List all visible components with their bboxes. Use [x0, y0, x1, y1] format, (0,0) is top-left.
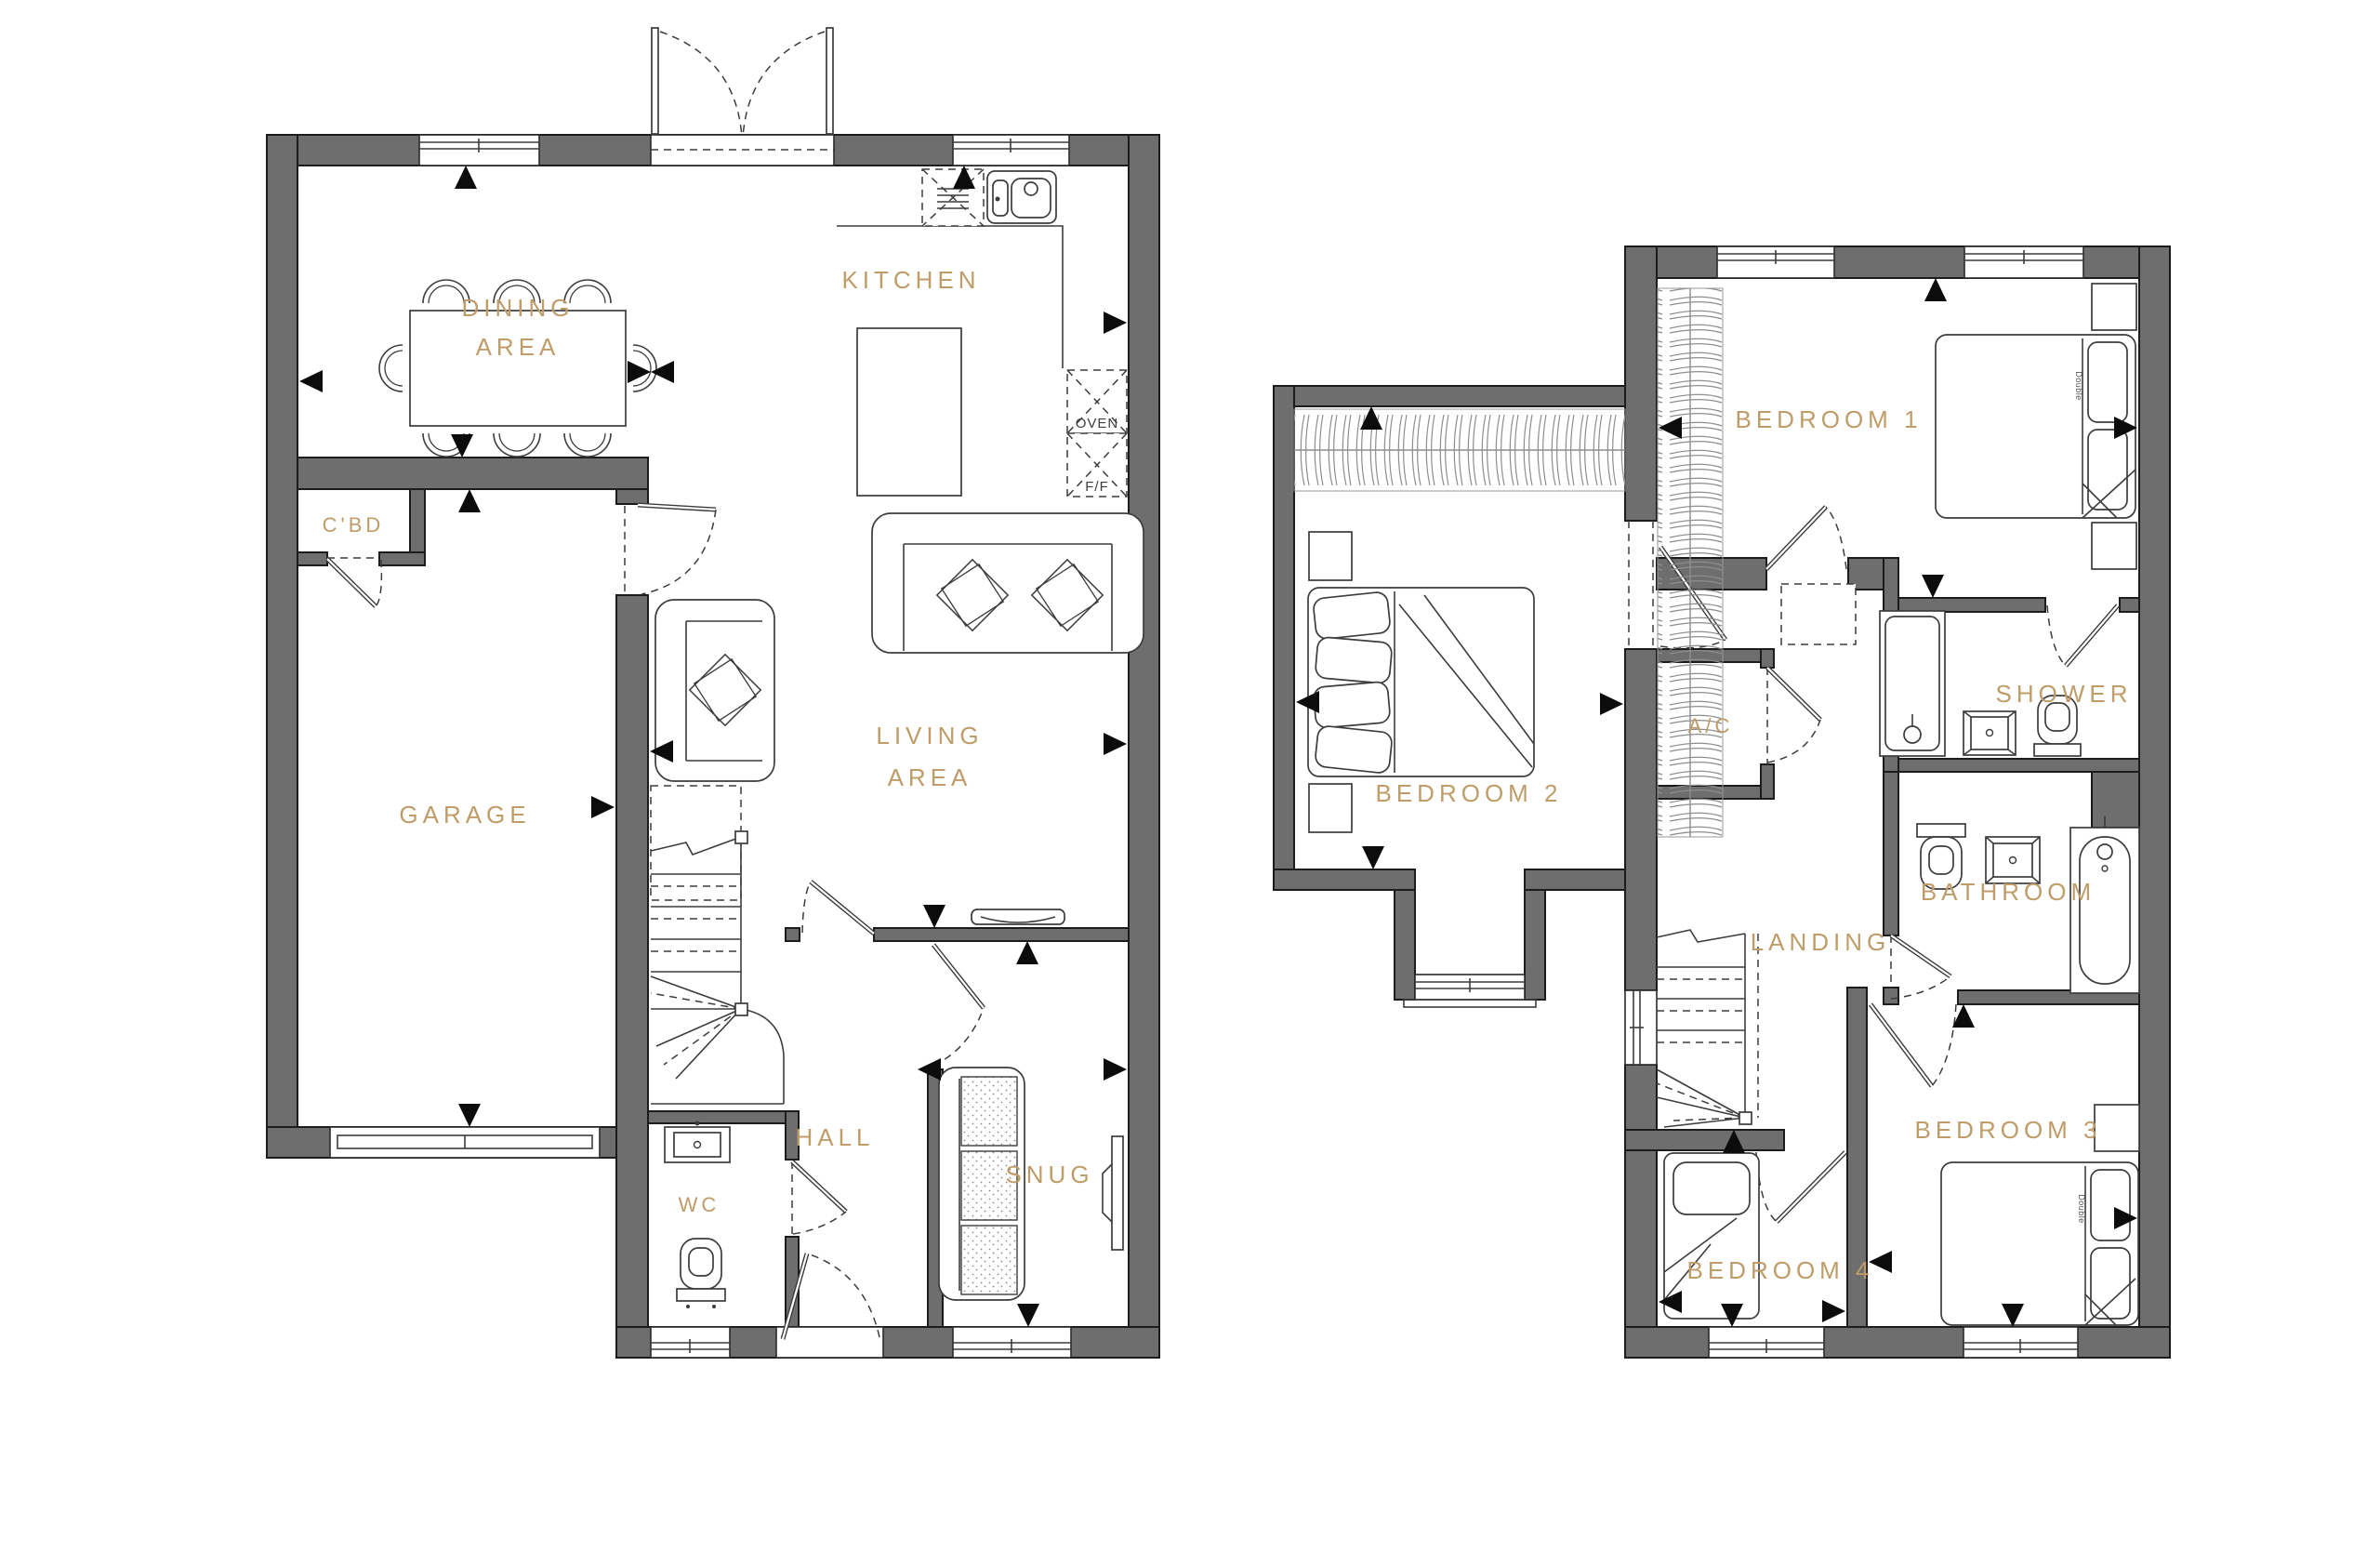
room-label-bedroom2: BEDROOM 2	[1375, 779, 1562, 807]
hall-shelf	[972, 909, 1064, 924]
shower-room-door	[2047, 605, 2118, 666]
room-label-wc: WC	[679, 1193, 721, 1216]
window	[1717, 246, 1834, 278]
garage-living-door	[625, 505, 716, 594]
room-label-bedroom1: BEDROOM 1	[1735, 405, 1922, 433]
bedroom2-bed	[1308, 588, 1534, 776]
appliance-label-oven: OVEN	[1076, 416, 1119, 431]
bed-size-label: Double	[2074, 371, 2083, 401]
airing-cupboard-door	[1767, 668, 1820, 764]
window	[953, 135, 1069, 166]
room-label-living-2: AREA	[888, 763, 972, 791]
ground-floor-plan: DINING AREA KITCHEN C'BD GARAGE LIVING A…	[267, 28, 1159, 1358]
window	[1625, 990, 1657, 1065]
floorplan-page: DINING AREA KITCHEN C'BD GARAGE LIVING A…	[0, 0, 2380, 1552]
wc-basin	[665, 1121, 730, 1163]
bedroom1-wardrobe	[1658, 288, 1723, 837]
window	[651, 1327, 730, 1358]
bedroom1-bed: Double	[1936, 335, 2135, 518]
loft-hatch	[1781, 584, 1856, 644]
room-label-bedroom3: BEDROOM 3	[1914, 1116, 2101, 1144]
room-label-shower: SHOWER	[1996, 680, 2133, 708]
room-label-cupboard: C'BD	[323, 513, 385, 537]
room-label-bedroom4: BEDROOM 4	[1686, 1256, 1873, 1284]
shower-basin	[1963, 711, 2016, 755]
wc-door	[792, 1161, 846, 1235]
bay-window	[1404, 975, 1536, 1007]
appliance-label-fridge: F/F	[1085, 479, 1109, 495]
floorplan-image: DINING AREA KITCHEN C'BD GARAGE LIVING A…	[0, 0, 2380, 1552]
bedside-table	[2092, 523, 2136, 569]
bedroom1-door	[1766, 507, 1846, 569]
bathroom-door	[1891, 935, 1950, 999]
bedside-table	[1309, 784, 1352, 832]
snug-door	[933, 945, 984, 1066]
room-label-garage: GARAGE	[399, 801, 530, 829]
room-label-hall: HALL	[795, 1123, 874, 1151]
room-label-landing: LANDING	[1751, 928, 1891, 956]
shower-enclosure	[1880, 611, 1945, 756]
room-label-airing-cupboard: A/C	[1688, 714, 1734, 737]
bedroom3-bed: Double	[1941, 1162, 2138, 1325]
kitchen-island	[857, 328, 961, 496]
room-label-dining-2: AREA	[476, 333, 561, 361]
hall-living-door	[802, 882, 874, 934]
room-label-snug: SNUG	[1005, 1161, 1093, 1188]
living-armchair	[655, 600, 774, 781]
cupboard-door	[327, 558, 381, 606]
garage-door	[330, 1127, 600, 1158]
bed-size-label: Double	[2077, 1194, 2086, 1224]
window	[1964, 246, 2083, 278]
window	[1963, 1327, 2078, 1358]
bedroom3-door	[1871, 1004, 1956, 1086]
window	[1709, 1327, 1824, 1358]
window	[953, 1327, 1071, 1358]
bathroom-basin	[1986, 837, 2040, 883]
window	[419, 135, 539, 166]
bedside-table	[2092, 284, 2136, 330]
room-label-dining-1: DINING	[462, 294, 575, 322]
room-label-living-1: LIVING	[876, 722, 983, 749]
room-label-kitchen: KITCHEN	[841, 266, 980, 294]
living-sofa	[872, 513, 1144, 653]
bedroom2-wardrobe	[1294, 409, 1625, 491]
ground-staircase	[651, 786, 784, 1104]
wc-toilet	[677, 1239, 725, 1308]
room-label-bathroom: BATHROOM	[1921, 878, 2096, 906]
first-floor-plan: Double	[1274, 246, 2170, 1358]
snug-tv	[1103, 1136, 1123, 1250]
bedside-table	[1309, 532, 1352, 580]
bedroom4-door	[1756, 1152, 1845, 1222]
french-doors	[651, 28, 834, 166]
